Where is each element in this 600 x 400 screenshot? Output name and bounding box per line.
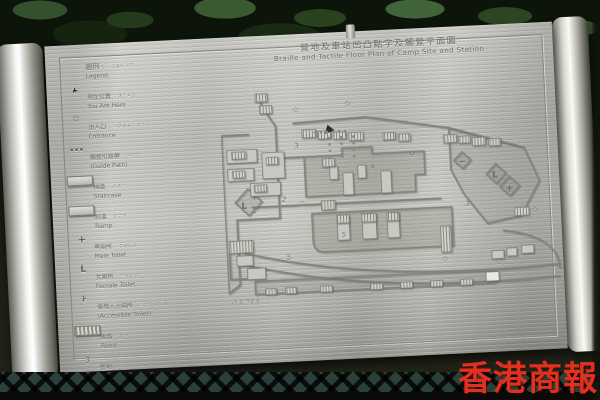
toilet-symbol-right-2: L (492, 170, 498, 180)
map-number-label: 3 (294, 142, 299, 150)
toilet-symbol-right-1: − (458, 157, 466, 167)
legend-label-zh: 現在位置 (87, 93, 111, 101)
legend-symbol: + (70, 235, 94, 245)
legend-item: 斜道 ⠗⠍⠏ Ramp (68, 197, 245, 232)
legend-braille: ⠉⠏⠵ (119, 364, 133, 371)
plaque-face: 營地及車站凹凸點字及觸覺平面圖 Braille and Tactile Floo… (44, 22, 567, 373)
legend-braille: ⠗⠍⠏ (114, 214, 128, 221)
legend-symbol: ▪▪▪ (65, 145, 89, 155)
map-entrance-star-icon: ✩ (292, 106, 299, 115)
legend-symbol (67, 175, 93, 186)
legend-heading-braille: ⠨⠾⠇⠑⠛ (111, 63, 135, 70)
map-entrance-star-icon: ✩ (299, 199, 306, 208)
legend-braille: ⠗⠙ (120, 334, 130, 340)
legend-symbol: ✩ (64, 115, 88, 125)
legend-braille: ⠎⠞⠉ (112, 184, 126, 191)
map-number-label: 5 (286, 254, 291, 262)
tactile-map: L + − L + (218, 67, 570, 333)
legend-braille: ⠛⠙⠏⠁ (127, 153, 146, 160)
map-number-label: 5 (341, 231, 346, 239)
legend-item: ➤ 現在位置 ⠽⠁⠓⠗ You Are Here (62, 77, 239, 112)
map-entrance-star-icon: ✩ (496, 257, 503, 266)
mounting-tab (346, 24, 356, 38)
legend-label-zh: 梯級 (93, 184, 105, 192)
legend-braille: ⠁⠉⠉⠞⠇⠞ (140, 302, 168, 309)
legend-symbol (68, 205, 94, 216)
map-number-label: 2 (282, 196, 287, 204)
legend-label-zh: 斜道 (95, 214, 107, 222)
map-number-label: 9 (370, 163, 375, 171)
legend-item: L 女廁所 ⠋⠞⠇⠞ Female Toilet (71, 257, 248, 292)
legend-symbol: ➤ (63, 79, 87, 102)
map-number-label: 9 (410, 151, 415, 159)
legend-heading: 圖例 : ⠨⠾⠇⠑⠛ Legend (61, 47, 238, 82)
legend-braille: ⠋⠞⠇⠞ (121, 273, 140, 280)
map-entrance-star-icon: ✩ (442, 254, 449, 263)
legend-item: + 男廁所 ⠍⠞⠇⠞ Male Toilet (70, 227, 247, 262)
legend-item: 梯級 ⠎⠞⠉ Staircase (67, 167, 244, 202)
legend-symbol (74, 325, 100, 336)
tactile-map-svg: L + − L + (218, 67, 570, 333)
legend-label-zh: 傷殘人士廁所 (97, 302, 133, 311)
legend-item: 馬路 ⠗⠙ Road (74, 317, 251, 352)
legend-item: ▪▪▪ 觸覺引路帶 ⠛⠙⠏⠁ (Guide Path) (65, 137, 242, 172)
legend-braille: ⠽⠁⠓⠗ (118, 93, 137, 100)
legend-item: ⊦ 傷殘人士廁所 ⠁⠉⠉⠞⠇⠞ (Accessible Toilet) (73, 287, 250, 322)
foliage-right-edge (591, 0, 600, 400)
steel-plaque: 營地及車站凹凸點字及觸覺平面圖 Braille and Tactile Floo… (0, 15, 600, 380)
map-number-label: 1 (252, 207, 257, 215)
watermark-text: 香港商報 (458, 360, 598, 398)
legend-braille: ⠍⠞⠇⠞ (119, 243, 138, 250)
legend-label-zh: 營地 (100, 364, 112, 372)
map-number-label: 3 (465, 200, 470, 208)
map-entrance-star-icon: ✩ (531, 205, 538, 214)
legend-symbol: 3 (75, 355, 99, 365)
toilet-symbol-female-left: L (241, 202, 247, 212)
legend-label-zh: 馬路 (100, 333, 112, 341)
legend-label-zh: 出入口 (88, 124, 106, 132)
legend-braille: ⠑⠝⠞⠗⠁⠝⠉⠑ (113, 122, 151, 130)
toilet-symbol-right-3: + (506, 184, 514, 194)
legend-symbol: L (71, 265, 95, 275)
legend-label-zh: 女廁所 (96, 273, 114, 281)
legend-label-zh: 男廁所 (94, 243, 112, 251)
legend-symbol: ⊦ (73, 295, 97, 305)
legend-item: ✩ 出入口 ⠑⠝⠞⠗⠁⠝⠉⠑ Entrance (64, 107, 241, 142)
photo-of-tactile-map-plaque: 營地及車站凹凸點字及觸覺平面圖 Braille and Tactile Floo… (0, 0, 600, 400)
map-entrance-star-icon: ✩ (344, 99, 351, 108)
legend-heading-zh: 圖例 : (85, 63, 104, 72)
legend-label-zh: 觸覺引路帶 (90, 153, 120, 161)
